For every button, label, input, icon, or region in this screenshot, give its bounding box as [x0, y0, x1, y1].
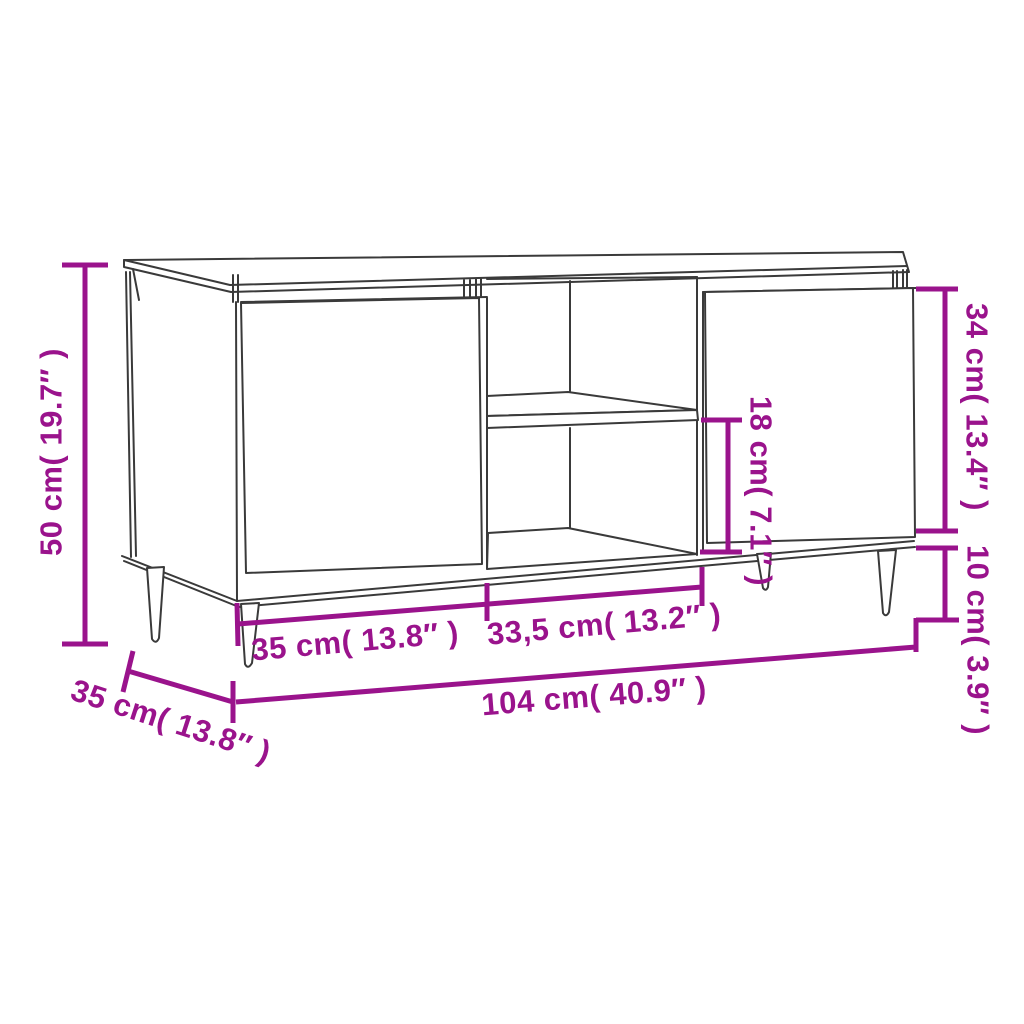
height-dimension-line	[62, 265, 108, 644]
depth-dimension-label: 35 cm( 13.8″ )	[67, 672, 276, 770]
middle-section-width-label: 33,5 cm( 13.2″ )	[486, 596, 723, 651]
open-shelf-niche	[487, 277, 703, 569]
top-rail-left-end	[133, 269, 139, 300]
leg-height-dimension-line	[916, 548, 959, 620]
shelf-opening-height-label: 18 cm( 7.1″ )	[744, 396, 779, 586]
cabinet-dimension-drawing: 50 cm( 19.7″ ) 35 cm( 13.8″ ) 35 cm( 13.…	[0, 0, 1024, 1024]
front-left-corner-edge	[236, 302, 237, 601]
door-height-dimension: 34 cm( 13.4″ )	[916, 289, 995, 531]
door-panel-height-label: 34 cm( 13.4″ )	[960, 303, 995, 511]
leg-front-right	[878, 550, 896, 615]
leg-height-label: 10 cm( 3.9″ )	[961, 545, 996, 735]
leg-back-left	[147, 567, 164, 642]
height-dimension: 50 cm( 19.7″ )	[34, 265, 109, 644]
left-side-panel-edges	[126, 272, 136, 557]
right-door	[705, 288, 915, 543]
door-height-dimension-line	[916, 289, 958, 531]
left-door	[241, 298, 482, 573]
cabinet-drawing	[122, 252, 916, 667]
furniture-dimension-diagram: 50 cm( 19.7″ ) 35 cm( 13.8″ ) 35 cm( 13.…	[0, 0, 1024, 1024]
cabinet-top-board	[124, 252, 909, 292]
depth-dimension: 35 cm( 13.8″ )	[67, 651, 276, 770]
leg-height-dimension: 10 cm( 3.9″ )	[916, 545, 996, 735]
height-dimension-label: 50 cm( 19.7″ )	[34, 348, 69, 556]
front-width-dimensions: 35 cm( 13.8″ ) 33,5 cm( 13.2″ )	[237, 567, 722, 667]
